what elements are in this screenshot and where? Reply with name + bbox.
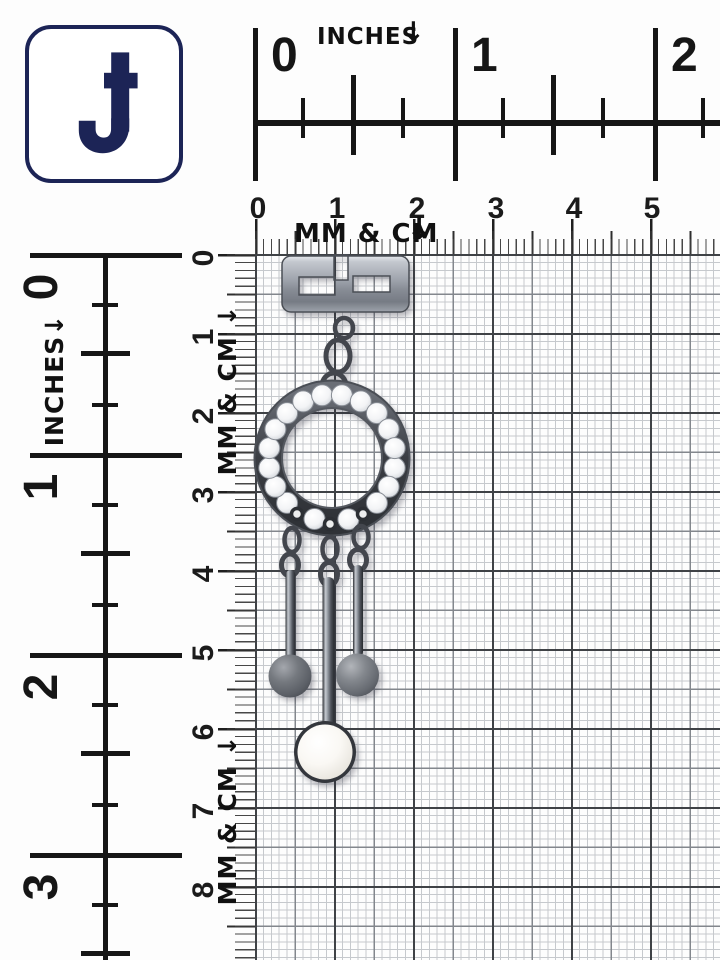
left-cm-number: 9 bbox=[184, 949, 224, 960]
bar-left bbox=[286, 570, 296, 660]
top-cm-number: 5 bbox=[644, 194, 661, 224]
tick-quarter bbox=[501, 98, 505, 138]
tick-half bbox=[551, 75, 556, 155]
bar-right bbox=[353, 565, 363, 657]
tick-quarter bbox=[92, 903, 118, 907]
tick-half bbox=[81, 551, 130, 556]
product-measurement-photo: 0 1 2 INCHES ↓ 0 1 2 3 4 5 MM & CM ↓ 0 1… bbox=[0, 0, 720, 960]
top-cm-number: 0 bbox=[250, 194, 267, 224]
grey-bead-drop-right bbox=[336, 654, 379, 697]
bar-center bbox=[323, 577, 335, 740]
left-inches-label: INCHES↓ bbox=[39, 295, 69, 465]
top-inch-number: 0 bbox=[271, 32, 298, 80]
left-inch-number: 2 bbox=[12, 657, 72, 717]
logo-j-cross-icon bbox=[44, 44, 164, 164]
left-inch-number: 1 bbox=[12, 457, 72, 517]
tick-half bbox=[351, 75, 356, 155]
top-inch-number: 1 bbox=[471, 32, 498, 80]
tick-quarter bbox=[92, 803, 118, 807]
tick-quarter bbox=[92, 603, 118, 607]
tick-quarter bbox=[92, 703, 118, 707]
left-inch-number: 3 bbox=[12, 857, 72, 917]
greek-key-plaque bbox=[282, 255, 409, 312]
brand-logo bbox=[25, 25, 183, 183]
top-cm-number: 4 bbox=[566, 194, 583, 224]
tick-quarter bbox=[92, 303, 118, 307]
tick-half bbox=[81, 351, 130, 356]
tick-half bbox=[81, 951, 130, 956]
tick-inch-1 bbox=[453, 28, 458, 181]
left-cm-number: 0 bbox=[184, 238, 224, 278]
left-cm-number: 4 bbox=[184, 554, 224, 594]
earring-product-photo bbox=[230, 240, 430, 815]
top-inch-baseline bbox=[253, 120, 720, 126]
tick-quarter bbox=[701, 98, 705, 138]
tick-quarter bbox=[301, 98, 305, 138]
top-inch-number: 2 bbox=[671, 32, 698, 80]
crystal-studded-circle bbox=[255, 381, 410, 536]
tick-half bbox=[81, 751, 130, 756]
pearl-drop-center bbox=[294, 721, 356, 783]
left-cm-number: 3 bbox=[184, 475, 224, 515]
tick-quarter bbox=[601, 98, 605, 138]
down-arrow-icon: ↓ bbox=[402, 19, 425, 46]
top-cm-number: 3 bbox=[488, 194, 505, 224]
grey-bead-drop-left bbox=[269, 655, 312, 698]
tick-inch-2 bbox=[653, 28, 658, 181]
tick-quarter bbox=[92, 403, 118, 407]
left-cm-number: 5 bbox=[184, 633, 224, 673]
tick-inch-0 bbox=[253, 28, 258, 181]
tick-quarter bbox=[401, 98, 405, 138]
drop-bars bbox=[286, 565, 364, 740]
tick-quarter bbox=[92, 503, 118, 507]
